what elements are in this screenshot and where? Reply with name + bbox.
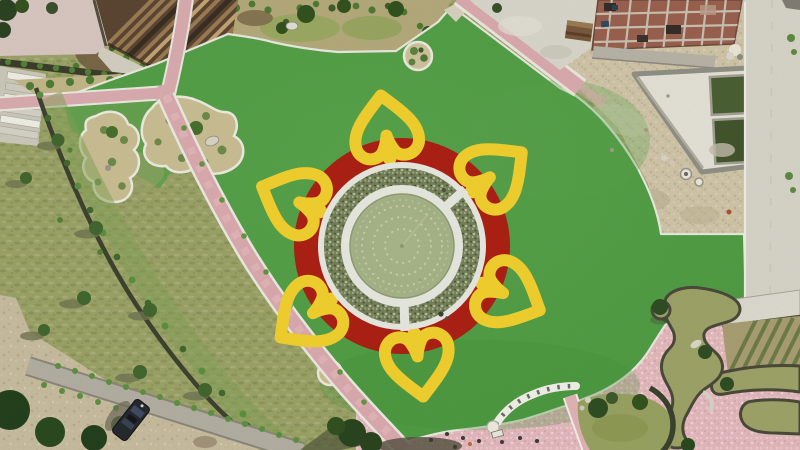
- park-scene: [0, 0, 800, 450]
- aerial-park-photo: [0, 0, 800, 450]
- photo-grain: [0, 0, 800, 450]
